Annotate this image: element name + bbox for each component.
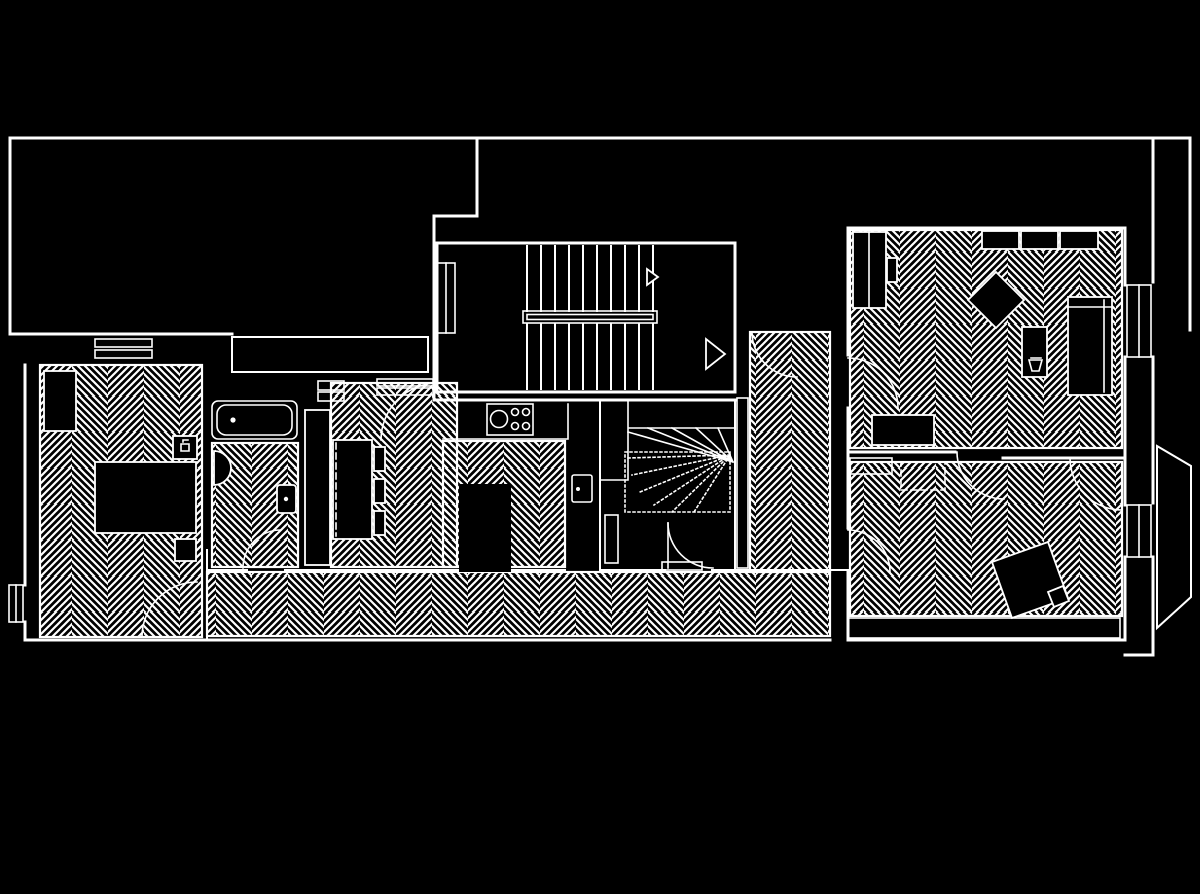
right-window-bottom	[1127, 505, 1151, 557]
stair-lower-flight-treads	[527, 324, 653, 389]
winder-closet	[605, 515, 618, 563]
wardrobe	[44, 371, 76, 431]
kitchen-counter-edge	[443, 404, 568, 439]
floor-areas	[40, 230, 1122, 637]
stair-center-rail	[523, 311, 657, 323]
right-window-top	[1127, 285, 1151, 357]
floor-plan-page	[0, 0, 1200, 894]
stair-hall-enclosure	[437, 243, 735, 392]
left-room-window-left	[9, 585, 23, 622]
stair-hall-window	[437, 263, 455, 333]
wall-appliance	[572, 475, 592, 502]
right-rooms-divider-wall	[848, 452, 1125, 458]
left-block-outline	[10, 138, 232, 334]
desk	[872, 415, 934, 445]
small-table	[175, 539, 196, 561]
right-exterior-wall	[1125, 138, 1153, 655]
small-cabinet	[887, 258, 897, 282]
sofa-cushion	[374, 511, 385, 535]
bathtub-inner	[217, 405, 292, 435]
exterior-stepped-bay	[1157, 446, 1191, 628]
top-step-wall	[434, 138, 477, 243]
corridor-floor	[207, 572, 830, 636]
sofa-cushion	[374, 447, 385, 471]
right-hall-floor	[750, 332, 830, 572]
kitchen-island	[459, 484, 511, 572]
hatched-wall-section	[737, 398, 748, 568]
right-bottom-room-floor	[850, 462, 1122, 616]
stair-upper-flight-treads	[527, 246, 653, 311]
bookshelf	[848, 618, 1120, 638]
stair-direction-arrow-large	[706, 339, 725, 369]
sofa-cushion	[374, 479, 385, 503]
bed	[95, 462, 196, 533]
main-staircase	[437, 243, 735, 392]
right-exterior	[1127, 285, 1191, 628]
winder-staircase	[600, 400, 735, 570]
sofa	[333, 440, 372, 539]
left-room-window-top	[95, 339, 152, 358]
bed-right	[1068, 297, 1112, 395]
small-table-with-cup	[1022, 327, 1047, 377]
winder-dashed-treads	[628, 455, 730, 512]
wall-appliance-dot	[576, 487, 580, 491]
bathtub	[212, 401, 297, 439]
floor-plan-canvas	[0, 0, 1200, 894]
winder-partitions	[600, 400, 735, 480]
cooktop	[487, 404, 533, 435]
bathtub-drain	[230, 417, 235, 422]
toilet-flush-dot	[284, 497, 288, 501]
tall-cabinet	[305, 410, 330, 565]
sideboard	[982, 231, 1098, 249]
stair-center-rail-inner	[527, 315, 653, 320]
